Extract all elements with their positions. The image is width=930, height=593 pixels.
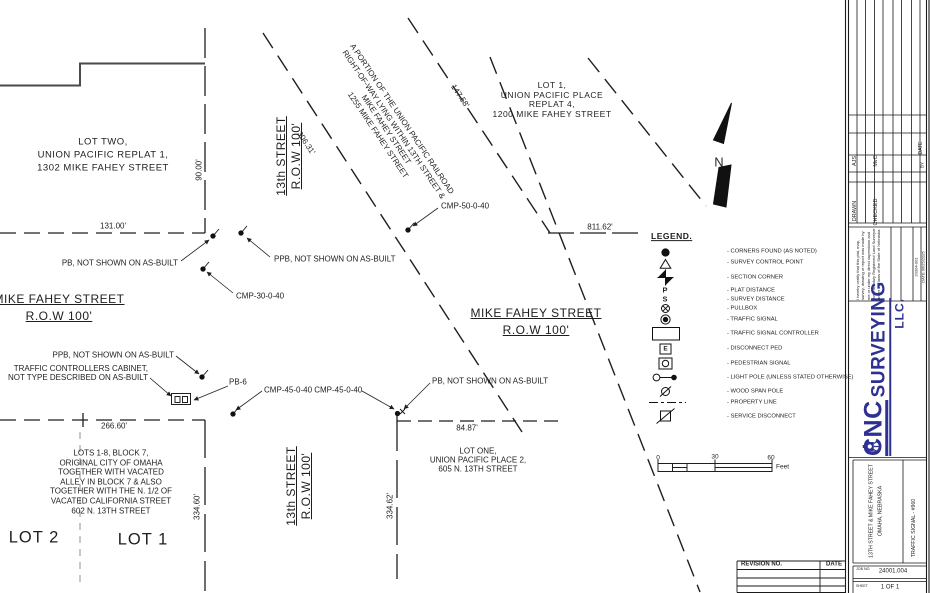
title-block-drawn-by: AJS <box>851 156 857 166</box>
legend-item-corners-found: - CORNERS FOUND (AS NOTED) <box>727 249 817 256</box>
building-outline <box>0 64 205 86</box>
title-block-checked-by: MvC <box>872 155 878 166</box>
legend-item-plat-distance: - PLAT DISTANCE <box>727 287 775 294</box>
legend-item-survey-distance: - SURVEY DISTANCE <box>727 296 785 303</box>
callout-cabinet: TRAFFIC CONTROLLERS CABINET, NOT TYPE DE… <box>8 365 148 383</box>
legend-item-pullbox: - PULLBOX <box>727 305 757 312</box>
dimension-334-62: 334.62' <box>385 493 394 519</box>
dimension-90: 90.00' <box>194 159 203 181</box>
title-block-cert-date: DATE 06/25/2025 <box>922 251 927 283</box>
title-block-sheet-number: 1 OF 1 <box>881 584 899 591</box>
scale-tick-0: 0 <box>656 454 660 461</box>
street-label-13th-south: 13th STREET R.O.W 100' <box>284 446 314 526</box>
title-block-checked-label: CHECKED <box>872 199 878 226</box>
filled-circle-icon <box>662 249 669 256</box>
section-corner-icon <box>658 270 674 286</box>
dimension-334-60: 334.60' <box>192 494 201 520</box>
legend-item-section-corner: - SECTION CORNER <box>727 274 783 281</box>
parcel-label-lots-block7: LOTS 1-8, BLOCK 7, ORIGINAL CITY OF OMAH… <box>50 448 172 515</box>
legend-item-wood-span-pole: - WOOD SPAN POLE <box>727 388 783 395</box>
title-block-job-label: JOB NO. <box>856 567 870 571</box>
circle-slash-icon <box>660 387 671 397</box>
callout-pb-north: PB, NOT SHOWN ON AS-BUILT <box>62 258 178 267</box>
title-block-by-label: BY <box>919 162 924 168</box>
callout-cmp-50: CMP-50-0-40 <box>441 201 489 210</box>
scale-tick-30: 30 <box>711 453 718 460</box>
legend-item-property-line: - PROPERTY LINE <box>727 399 777 406</box>
dimension-131: 131.00' <box>100 221 126 230</box>
survey-plat-sheet: LOT TWO, UNION PACIFIC REPLAT 1, 1302 MI… <box>0 0 930 593</box>
north-arrow-label: N <box>714 156 723 171</box>
callout-cmp-45: CMP-45-0-40 CMP-45-0-40 <box>264 385 362 394</box>
revision-table-date-header: DATE <box>826 562 842 569</box>
title-block-cert-number: 20304-001 <box>914 257 919 276</box>
cabinet-symbol <box>172 394 191 405</box>
parcel-label-lot-two: LOT TWO, UNION PACIFIC REPLAT 1, 1302 MI… <box>37 136 169 175</box>
legend-title: LEGEND. <box>651 232 692 242</box>
circle-x-icon <box>662 305 670 313</box>
parcel-label-lot-2: LOT 2 <box>9 529 60 548</box>
transit-instrument-icon <box>862 439 879 454</box>
legend-item-light-pole: - LIGHT POLE (UNLESS STATED OTHERWISE) <box>727 374 853 381</box>
title-block-sheet-label: SHEET <box>856 583 868 587</box>
street-label-13th-north: 13th STREET R.O.W 100' <box>274 116 304 196</box>
triangle-icon <box>660 260 671 269</box>
boxed-circle-icon <box>659 358 672 369</box>
callout-pb-south: PB, NOT SHOWN ON AS-BUILT <box>432 376 548 385</box>
legend-item-disconnect-ped: - DISCONNECT PED <box>727 345 782 352</box>
title-block-job-number: 24001.004 <box>879 569 907 576</box>
legend-item-service-disconnect: - SERVICE DISCONNECT <box>727 414 796 421</box>
company-logo: CNC SURVEYING LLC. <box>862 298 906 456</box>
circle-dot-icon <box>661 315 670 324</box>
legend-item-pedestrian-signal: - PEDESTRIAN SIGNAL <box>727 360 790 367</box>
light-pole-icon <box>653 374 676 381</box>
square-diagonal-icon <box>657 409 675 424</box>
title-block-sheet-title: TRAFFIC SIGNAL - #960 <box>912 499 918 557</box>
title-block-project: 13TH STREET & MIKE FAHEY STREET OMAHA, N… <box>868 456 885 566</box>
scale-unit: Feet <box>776 463 789 470</box>
callout-ppb-south: PPB, NOT SHOWN ON AS-BUILT <box>53 350 175 359</box>
revision-table-header: REVISION NO. <box>741 562 782 569</box>
legend-symbol-s: S <box>662 295 667 304</box>
title-block-drawn-label: DRAWN <box>851 201 857 222</box>
legend-item-survey-control: - SURVEY CONTROL POINT <box>727 260 803 267</box>
leader-lines <box>150 208 438 410</box>
dimension-84: 84.87' <box>456 423 478 432</box>
callout-cmp-30: CMP-30-0-40 <box>236 291 284 300</box>
legend-item-traffic-signal: - TRAFFIC SIGNAL <box>727 316 778 323</box>
street-label-mike-fahey-east: MIKE FAHEY STREET R.O.W 100' <box>471 305 602 339</box>
parcel-label-lot-one-place2: LOT ONE, UNION PACIFIC PLACE 2, 605 N. 1… <box>430 447 526 474</box>
company-logo-surveying: SURVEYING <box>871 281 888 397</box>
scale-bar <box>658 460 772 472</box>
callout-ppb-north: PPB, NOT SHOWN ON AS-BUILT <box>274 254 396 263</box>
parcel-label-lot-1: LOT 1 <box>118 531 169 550</box>
dimension-266: 266.60' <box>101 421 127 430</box>
parcel-label-lot1-replat4: LOT 1, UNION PACIFIC PLACE REPLAT 4, 120… <box>492 81 611 119</box>
legend-symbols <box>649 249 686 424</box>
company-logo-llc: LLC. <box>892 298 906 456</box>
legend-symbol-e: E <box>663 345 667 352</box>
scale-tick-60: 60 <box>767 454 774 461</box>
title-block-date-label: DATE <box>919 142 925 155</box>
legend-item-signal-controller: - TRAFFIC SIGNAL CONTROLLER <box>727 330 819 337</box>
dimension-811: 811.62' <box>587 222 612 231</box>
callout-pb6: PB-6 <box>229 377 247 386</box>
street-label-mike-fahey-west: MIKE FAHEY STREET R.O.W 100' <box>0 291 124 325</box>
rectangle-icon <box>653 328 680 341</box>
